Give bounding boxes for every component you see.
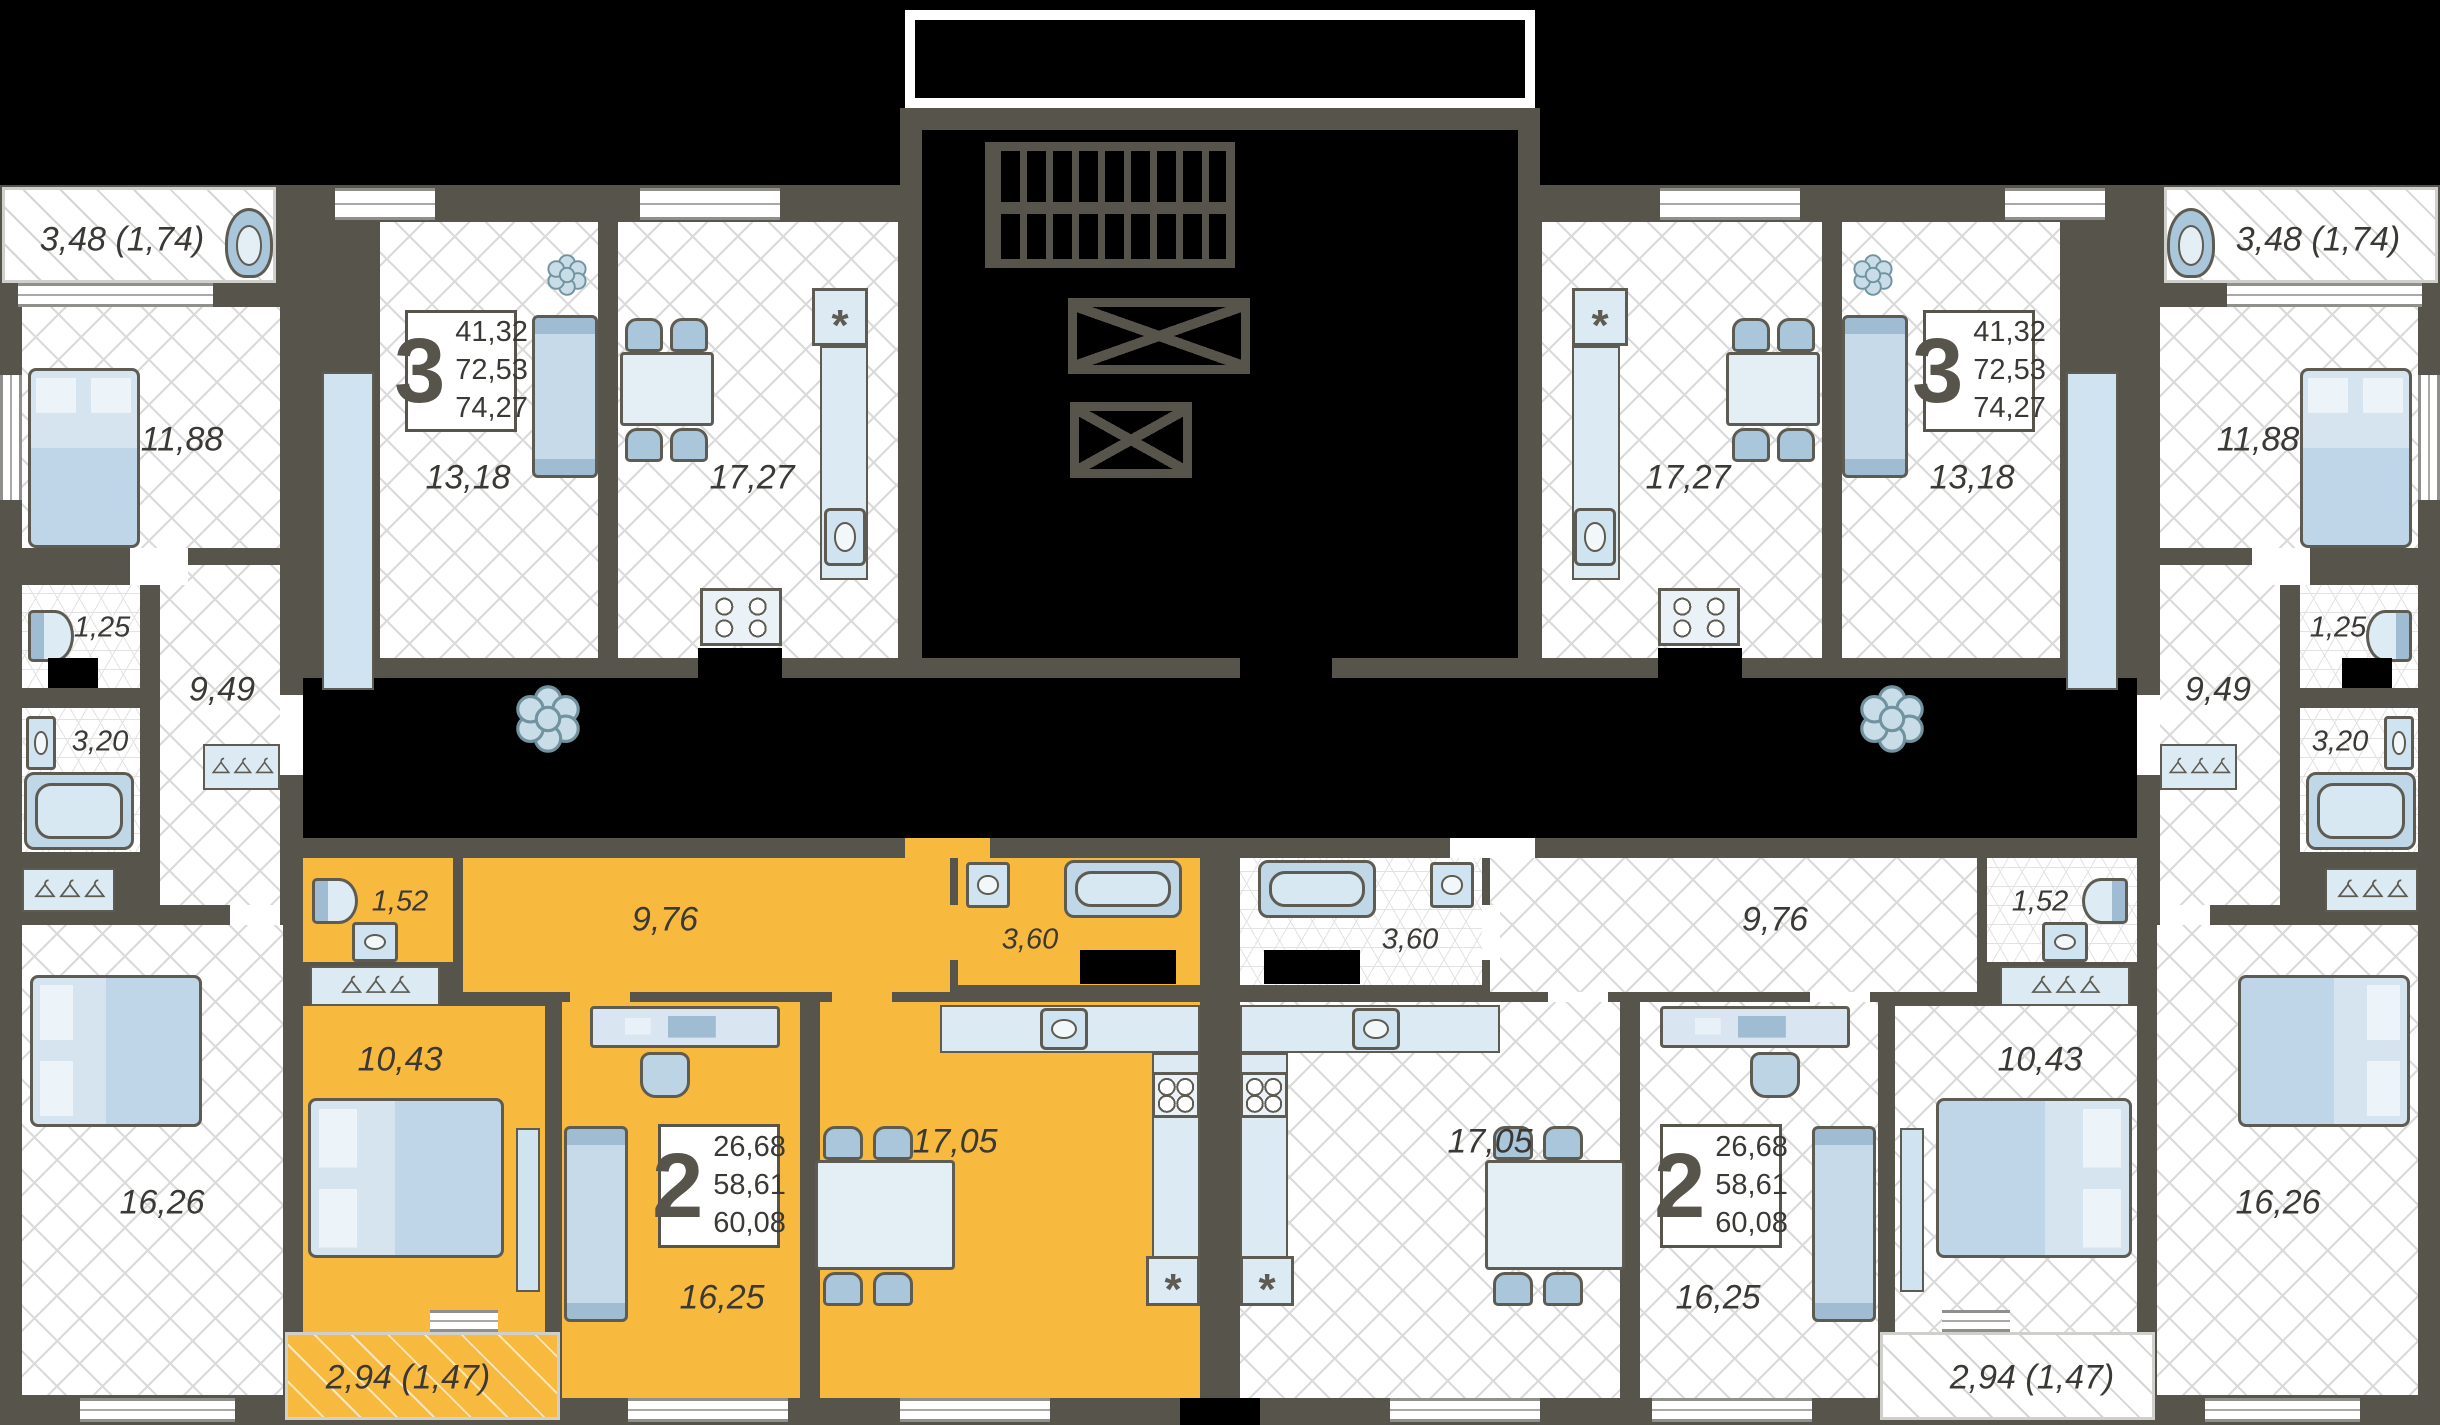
wardrobe-panel-icon <box>322 372 374 690</box>
chair-icon <box>1777 428 1815 462</box>
sofa-icon <box>532 315 598 478</box>
chair-icon <box>625 318 663 352</box>
wardrobe-hangers-icon <box>310 966 440 1006</box>
room-label-wc: 1,52 <box>372 886 428 919</box>
chair-icon <box>823 1272 863 1306</box>
room-hall-right3 <box>2160 565 2280 905</box>
core-corridor-opening <box>1240 658 1332 680</box>
bed-icon <box>2238 975 2410 1127</box>
chair-icon <box>1543 1126 1583 1160</box>
dining-table-icon <box>1726 352 1820 426</box>
room-label-bedroom2: 16,26 <box>119 1184 204 1223</box>
desk-icon <box>590 1006 780 1048</box>
wardrobe-panel-icon <box>1900 1128 1924 1292</box>
chair-icon <box>873 1126 913 1160</box>
balcony-window <box>2227 283 2422 307</box>
balcony-door-window <box>430 1310 498 1332</box>
sofa-icon <box>1842 315 1908 478</box>
toilet-icon <box>2082 878 2128 924</box>
chair-icon <box>670 428 708 462</box>
stove-icon <box>1240 1072 1288 1118</box>
area-total: 72,53 <box>455 352 528 390</box>
apartment-card-right2[interactable]: 2 26,68 58,61 60,08 <box>1660 1124 1782 1248</box>
dining-table-icon <box>815 1160 955 1270</box>
cabinet-niche <box>698 648 782 678</box>
room-label-kitchen: 17,05 <box>912 1123 997 1162</box>
room-label-bedroom: 11,88 <box>141 421 224 460</box>
toilet-icon <box>312 878 358 924</box>
apartment-type-digit: 2 <box>652 1147 703 1225</box>
chair-icon <box>823 1126 863 1160</box>
bed-icon <box>2300 368 2412 548</box>
sink-icon <box>2384 716 2414 770</box>
area-total-balcony: 60,08 <box>713 1205 786 1243</box>
door-opening <box>1482 905 1500 960</box>
door-opening <box>2252 548 2310 585</box>
bed-icon <box>28 368 140 548</box>
entrance-door-right2[interactable] <box>1450 838 1535 858</box>
area-total: 72,53 <box>1973 352 2046 390</box>
chair-icon <box>873 1272 913 1306</box>
window <box>1660 188 1800 220</box>
fridge-icon <box>1240 1256 1294 1306</box>
chair-icon <box>1732 318 1770 352</box>
room-label-living: 13,18 <box>425 459 510 498</box>
room-label-living: 13,18 <box>1929 459 2014 498</box>
staircase <box>985 142 1235 268</box>
balcony-window <box>18 283 213 307</box>
floor-plan: 3 41,32 72,53 74,27 3 41,32 72,53 74,27 … <box>0 0 2440 1425</box>
bathtub-icon <box>24 772 134 850</box>
fridge-icon <box>812 288 868 346</box>
wardrobe-hangers-icon <box>2325 868 2418 912</box>
bed-icon <box>1936 1098 2132 1258</box>
door-opening <box>570 992 630 1002</box>
armchair-icon <box>225 208 273 278</box>
sofa-icon <box>564 1126 628 1322</box>
plant-icon <box>1850 680 1934 758</box>
window <box>2418 375 2440 500</box>
room-label-bath: 3,20 <box>2312 726 2368 759</box>
room-label-hall: 9,49 <box>2185 671 2251 710</box>
area-total-balcony: 74,27 <box>1973 390 2046 428</box>
entrance-door-right[interactable] <box>2137 695 2160 775</box>
apartment-type-digit: 2 <box>1654 1147 1705 1225</box>
stove-icon <box>700 588 782 646</box>
room-label-bath: 3,20 <box>72 726 128 759</box>
room-label-bedroom: 10,43 <box>1997 1041 2082 1080</box>
sofa-icon <box>1812 1126 1876 1322</box>
kitchen-sink-icon <box>1352 1008 1400 1050</box>
room-label-kitchen: 17,05 <box>1447 1123 1532 1162</box>
room-hall-yellow <box>463 858 950 992</box>
apartment-type-digit: 3 <box>394 332 445 410</box>
apartment-card-left3[interactable]: 3 41,32 72,53 74,27 <box>405 310 517 432</box>
window <box>335 188 435 220</box>
area-total: 58,61 <box>1715 1167 1788 1205</box>
sink-icon <box>26 716 56 770</box>
door-opening <box>2160 905 2210 925</box>
shaft-niche <box>2342 658 2392 688</box>
apartment-areas: 26,68 58,61 60,08 <box>1715 1129 1788 1242</box>
fridge-icon <box>1572 288 1628 346</box>
sink-icon <box>966 862 1010 908</box>
area-total-balcony: 60,08 <box>1715 1205 1788 1243</box>
window <box>80 1398 235 1422</box>
kitchen-sink-icon <box>1574 508 1616 566</box>
wardrobe-panel-icon <box>516 1128 540 1292</box>
room-label-bedroom: 11,88 <box>2217 421 2300 460</box>
armchair-icon <box>2167 208 2215 278</box>
bathtub-icon <box>1064 860 1182 918</box>
room-label-balcony: 2,94 (1,47) <box>1950 1359 2114 1398</box>
kitchen-sink-icon <box>824 508 866 566</box>
stair-shaft <box>905 10 1535 108</box>
window <box>628 1398 788 1422</box>
wardrobe-hangers-icon <box>2000 966 2130 1006</box>
room-label-balcony: 3,48 (1,74) <box>2236 221 2400 260</box>
wardrobe-panel-icon <box>2066 372 2118 690</box>
room-label-wc: 1,52 <box>2012 886 2068 919</box>
chair-icon <box>1732 428 1770 462</box>
window <box>0 375 22 500</box>
shaft-niche <box>48 658 98 688</box>
room-hall-left3 <box>160 565 280 905</box>
bathtub-icon <box>2306 772 2416 850</box>
apartment-areas: 26,68 58,61 60,08 <box>713 1129 786 1242</box>
plant-icon <box>543 248 591 302</box>
facade-recess <box>1180 1398 1260 1425</box>
room-label-hall: 9,76 <box>632 901 698 940</box>
apartment-card-yellow[interactable]: 2 26,68 58,61 60,08 <box>658 1124 780 1248</box>
plant-icon <box>506 680 590 758</box>
bed-icon <box>30 975 202 1127</box>
door-opening <box>130 548 188 585</box>
room-label-kitchen: 17,27 <box>709 459 794 498</box>
area-total: 58,61 <box>713 1167 786 1205</box>
room-label-wc: 1,25 <box>2310 612 2366 645</box>
sink-icon <box>352 922 398 962</box>
area-living: 26,68 <box>1715 1129 1788 1167</box>
wardrobe-hangers-icon <box>22 868 115 912</box>
window <box>640 188 780 220</box>
room-label-bedroom2: 16,26 <box>2235 1184 2320 1223</box>
area-living: 41,32 <box>1973 314 2046 352</box>
room-label-balcony: 2,94 (1,47) <box>326 1359 490 1398</box>
shaft-niche <box>1080 950 1176 984</box>
door-opening <box>230 905 280 925</box>
plant-icon <box>1849 248 1897 302</box>
elevator-2 <box>1070 402 1192 478</box>
area-total-balcony: 74,27 <box>455 390 528 428</box>
apartment-areas: 41,32 72,53 74,27 <box>1973 314 2046 427</box>
room-label-bath: 3,60 <box>1002 924 1058 957</box>
entrance-door-left[interactable] <box>280 695 303 775</box>
chair-icon <box>1493 1272 1533 1306</box>
sink-icon <box>2042 922 2088 962</box>
wardrobe-hangers-icon <box>203 744 280 790</box>
room-label-bedroom: 10,43 <box>357 1041 442 1080</box>
room-label-wc: 1,25 <box>74 612 130 645</box>
stove-icon <box>1152 1072 1200 1118</box>
stove-icon <box>1658 588 1740 646</box>
room-label-kitchen: 17,27 <box>1645 459 1730 498</box>
bed-icon <box>308 1098 504 1258</box>
room-label-hall: 9,49 <box>189 671 255 710</box>
desk-chair-icon <box>640 1052 690 1098</box>
desk-icon <box>1660 1006 1850 1048</box>
door-opening <box>940 905 958 960</box>
room-label-living: 16,25 <box>679 1279 764 1318</box>
room-label-balcony: 3,48 (1,74) <box>40 221 204 260</box>
wardrobe-hangers-icon <box>2160 744 2237 790</box>
desk-chair-icon <box>1750 1052 1800 1098</box>
dining-table-icon <box>620 352 714 426</box>
apartment-areas: 41,32 72,53 74,27 <box>455 314 528 427</box>
dining-table-icon <box>1485 1160 1625 1270</box>
door-opening <box>1548 992 1608 1002</box>
sink-icon <box>1430 862 1474 908</box>
window <box>2205 1398 2360 1422</box>
fridge-icon <box>1146 1256 1200 1306</box>
window <box>900 1398 1050 1422</box>
door-opening <box>1810 992 1870 1002</box>
kitchen-sink-icon <box>1040 1008 1088 1050</box>
cabinet-niche <box>1658 648 1742 678</box>
area-living: 26,68 <box>713 1129 786 1167</box>
door-opening <box>832 992 892 1002</box>
room-label-living: 16,25 <box>1675 1279 1760 1318</box>
shaft-niche <box>1264 950 1360 984</box>
chair-icon <box>670 318 708 352</box>
entrance-door-yellow[interactable] <box>905 838 990 858</box>
apartment-type-digit: 3 <box>1912 332 1963 410</box>
chair-icon <box>1777 318 1815 352</box>
chair-icon <box>625 428 663 462</box>
room-label-hall: 9,76 <box>1742 901 1808 940</box>
window <box>1390 1398 1540 1422</box>
room-hall-right2 <box>1490 858 1977 992</box>
chair-icon <box>1543 1272 1583 1306</box>
elevator-1 <box>1068 298 1250 374</box>
apartment-card-right3[interactable]: 3 41,32 72,53 74,27 <box>1923 310 2035 432</box>
area-living: 41,32 <box>455 314 528 352</box>
window <box>2005 188 2105 220</box>
toilet-icon <box>2366 610 2412 662</box>
bathtub-icon <box>1258 860 1376 918</box>
window <box>1652 1398 1812 1422</box>
room-label-bath: 3,60 <box>1382 924 1438 957</box>
toilet-icon <box>28 610 74 662</box>
balcony-door-window <box>1942 1310 2010 1332</box>
